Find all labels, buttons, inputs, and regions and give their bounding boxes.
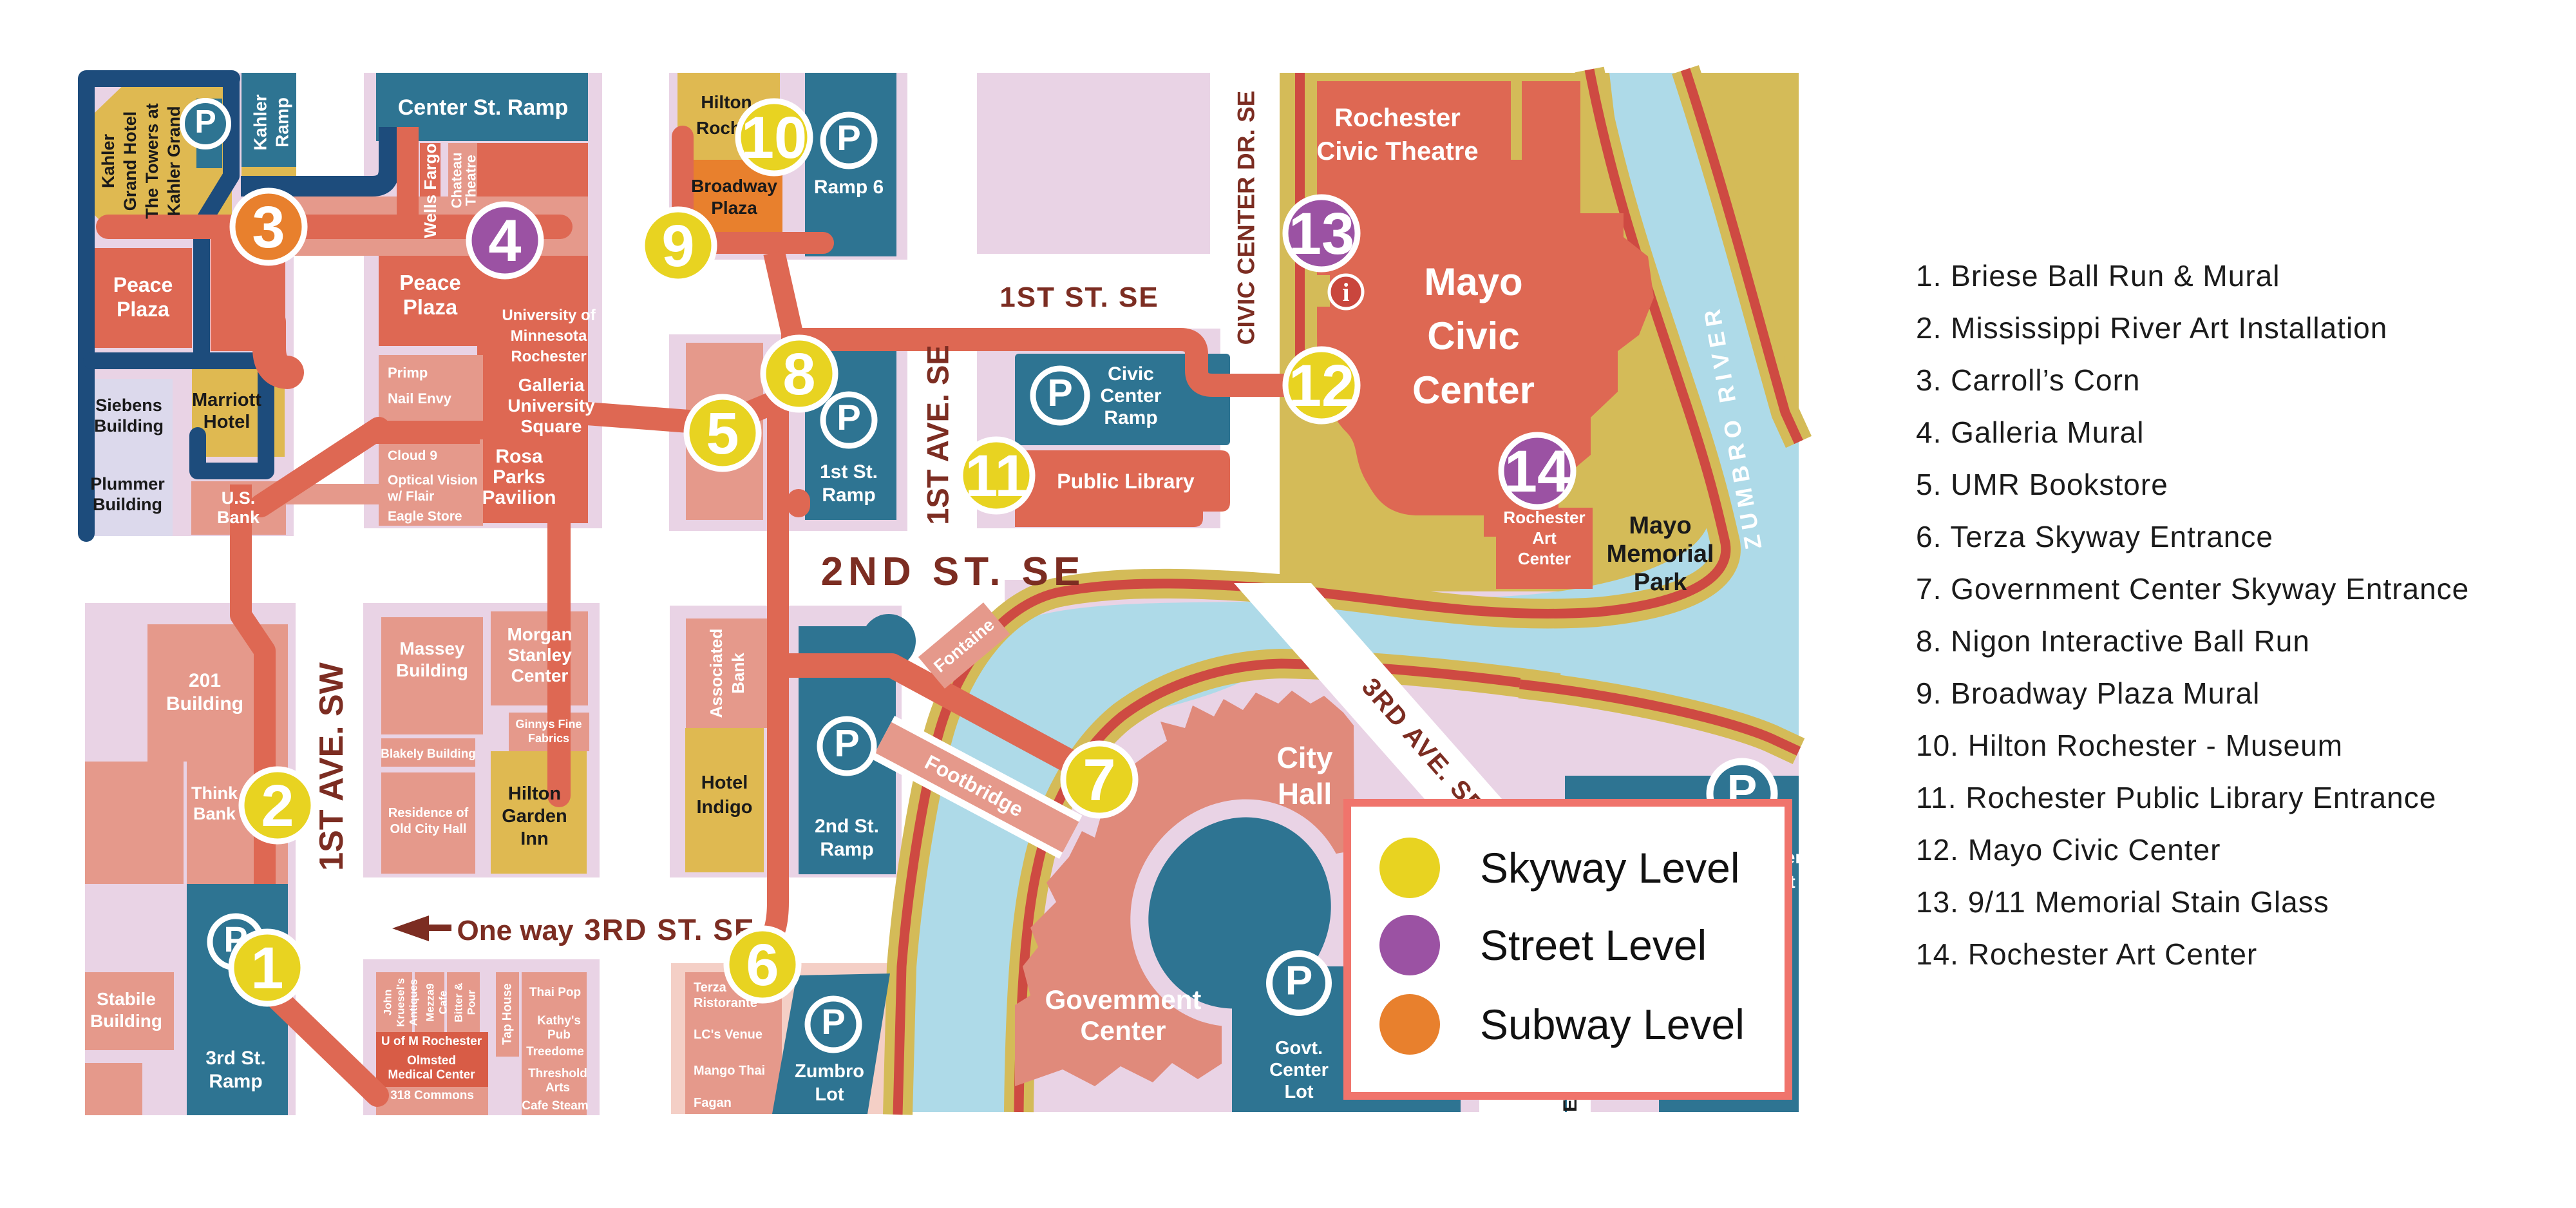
svg-text:w/ Flair: w/ Flair: [387, 489, 434, 504]
svg-text:4: 4: [488, 208, 521, 274]
svg-text:Ramp: Ramp: [1104, 407, 1157, 428]
svg-text:Cloud 9: Cloud 9: [388, 448, 437, 463]
svg-text:Street Level: Street Level: [1480, 921, 1707, 969]
svg-text:CIVIC CENTER DR. SE: CIVIC CENTER DR. SE: [1233, 91, 1260, 345]
svg-text:Broadway: Broadway: [691, 176, 777, 196]
svg-text:Mayo: Mayo: [1424, 260, 1522, 303]
svg-text:Parks: Parks: [493, 466, 545, 488]
svg-text:1ST ST. SE: 1ST ST. SE: [999, 282, 1159, 313]
svg-text:9. Broadway Plaza Mural: 9. Broadway Plaza Mural: [1916, 676, 2260, 710]
svg-text:Public Library: Public Library: [1057, 470, 1195, 493]
svg-text:Stanley: Stanley: [507, 645, 572, 665]
svg-text:Center St. Ramp: Center St. Ramp: [398, 95, 569, 120]
svg-text:3RD ST. SE: 3RD ST. SE: [584, 913, 755, 946]
svg-text:Zumbro: Zumbro: [795, 1061, 864, 1082]
svg-text:3. Carroll’s Corn: 3. Carroll’s Corn: [1916, 363, 2140, 397]
svg-text:Olmsted: Olmsted: [407, 1054, 456, 1068]
svg-text:Center: Center: [1100, 385, 1161, 407]
svg-text:Pour: Pour: [466, 990, 478, 1015]
svg-text:Minnesota: Minnesota: [511, 327, 587, 345]
svg-text:Civic: Civic: [1108, 363, 1154, 385]
svg-text:11: 11: [965, 443, 1027, 509]
svg-text:Square: Square: [521, 416, 582, 436]
svg-text:Terza: Terza: [694, 981, 727, 995]
svg-text:12. Mayo Civic Center: 12. Mayo Civic Center: [1916, 833, 2221, 867]
svg-text:P: P: [1285, 957, 1313, 1003]
svg-text:LC's Venue: LC's Venue: [694, 1028, 762, 1042]
svg-text:Stabile: Stabile: [97, 989, 156, 1009]
svg-text:11. Rochester Public Library E: 11. Rochester Public Library Entrance: [1916, 781, 2436, 814]
svg-text:Tap House: Tap House: [501, 983, 515, 1045]
svg-text:Bitter &: Bitter &: [453, 983, 465, 1022]
svg-text:14. Rochester Art Center: 14. Rochester Art Center: [1916, 937, 2257, 971]
svg-text:1. Briese Ball Run & Mural: 1. Briese Ball Run & Mural: [1916, 259, 2280, 292]
svg-text:Rochester: Rochester: [511, 348, 586, 365]
svg-text:Eagle Store: Eagle Store: [388, 509, 462, 524]
svg-text:Pub: Pub: [547, 1028, 571, 1042]
svg-text:Peace: Peace: [399, 271, 460, 294]
svg-text:2: 2: [261, 773, 294, 839]
svg-text:Theatre: Theatre: [463, 155, 479, 206]
svg-text:Hall: Hall: [1278, 777, 1332, 810]
svg-text:Marriott: Marriott: [192, 390, 261, 410]
svg-text:Bank: Bank: [728, 653, 748, 694]
svg-text:2. Mississippi River Art Insta: 2. Mississippi River Art Installation: [1916, 311, 2387, 345]
svg-text:Lot: Lot: [815, 1084, 844, 1105]
svg-text:P: P: [194, 104, 216, 140]
svg-text:Wells Fargo: Wells Fargo: [421, 144, 440, 238]
svg-text:Residence of: Residence of: [388, 806, 469, 820]
svg-text:Building: Building: [93, 495, 162, 514]
svg-text:University of: University of: [502, 307, 596, 324]
svg-text:Old City Hall: Old City Hall: [390, 822, 467, 836]
svg-text:The Towers at: The Towers at: [142, 103, 162, 219]
svg-text:Roch: Roch: [696, 118, 741, 138]
svg-text:P: P: [837, 117, 860, 158]
svg-text:Rochester: Rochester: [1334, 104, 1461, 132]
svg-text:Optical Vision: Optical Vision: [388, 473, 478, 488]
svg-text:City: City: [1277, 741, 1333, 774]
svg-text:3: 3: [252, 195, 285, 260]
svg-text:Park: Park: [1634, 569, 1687, 596]
svg-text:5. UMR Bookstore: 5. UMR Bookstore: [1916, 468, 2168, 501]
svg-text:Center: Center: [1269, 1060, 1329, 1080]
svg-text:U.S.: U.S.: [222, 488, 256, 508]
svg-text:14: 14: [1504, 439, 1570, 504]
svg-text:Fagan: Fagan: [694, 1096, 732, 1110]
svg-text:P: P: [834, 722, 859, 765]
svg-text:Plummer: Plummer: [90, 474, 165, 494]
svg-text:Grand Hotel: Grand Hotel: [120, 111, 140, 211]
svg-text:i: i: [1342, 278, 1349, 307]
svg-text:13. 9/11 Memorial Stain Glass: 13. 9/11 Memorial Stain Glass: [1916, 885, 2329, 919]
svg-text:P: P: [821, 1001, 845, 1042]
svg-text:4. Galleria Mural: 4. Galleria Mural: [1916, 416, 2144, 449]
svg-text:Building: Building: [396, 660, 468, 680]
svg-text:Siebens: Siebens: [95, 396, 162, 415]
svg-text:Think: Think: [191, 783, 238, 803]
svg-text:Rosa: Rosa: [495, 446, 543, 467]
svg-text:Govt.: Govt.: [1275, 1038, 1323, 1059]
svg-text:Center: Center: [511, 666, 569, 685]
svg-text:E: E: [1560, 1099, 1581, 1112]
svg-text:Center: Center: [1412, 369, 1535, 412]
svg-text:3rd St.: 3rd St.: [205, 1048, 265, 1069]
svg-text:Garden: Garden: [502, 806, 567, 827]
svg-text:8. Nigon Interactive Ball Run: 8. Nigon Interactive Ball Run: [1916, 624, 2310, 658]
svg-text:Morgan: Morgan: [507, 624, 572, 644]
svg-text:University: University: [507, 396, 595, 416]
svg-text:Indigo: Indigo: [697, 797, 753, 818]
svg-text:318 Commons: 318 Commons: [390, 1089, 474, 1102]
svg-text:Rochester: Rochester: [1503, 508, 1585, 527]
svg-text:Threshold: Threshold: [528, 1067, 587, 1080]
svg-text:Plaza: Plaza: [117, 298, 169, 321]
svg-text:Ramp: Ramp: [820, 839, 873, 860]
svg-text:Galleria: Galleria: [518, 375, 585, 395]
svg-text:Building: Building: [166, 693, 243, 714]
svg-text:Antiques: Antiques: [408, 979, 420, 1026]
svg-text:1ST AVE. SE: 1ST AVE. SE: [921, 345, 955, 524]
svg-text:201: 201: [189, 670, 221, 691]
svg-text:One way: One way: [457, 915, 574, 946]
svg-text:Inn: Inn: [520, 829, 549, 849]
svg-text:6: 6: [746, 932, 779, 998]
svg-text:Nail Envy: Nail Envy: [388, 390, 452, 407]
svg-text:Center: Center: [1080, 1015, 1166, 1046]
svg-text:Pavilion: Pavilion: [482, 487, 556, 508]
svg-text:Ginnys Fine: Ginnys Fine: [515, 718, 582, 731]
svg-text:P: P: [1047, 372, 1072, 414]
svg-text:Cafe Steam: Cafe Steam: [522, 1099, 589, 1113]
svg-text:Kathy's: Kathy's: [537, 1014, 581, 1028]
svg-text:Ramp: Ramp: [209, 1071, 262, 1092]
svg-text:Mezza9: Mezza9: [424, 983, 437, 1022]
svg-text:7. Government Center Skyway En: 7. Government Center Skyway Entrance: [1916, 572, 2469, 606]
svg-text:Plaza: Plaza: [403, 295, 458, 319]
svg-text:Skyway Level: Skyway Level: [1480, 844, 1740, 892]
svg-text:1: 1: [251, 935, 283, 1001]
svg-text:2ND ST. SE: 2ND ST. SE: [821, 550, 1086, 594]
svg-text:Treedome: Treedome: [526, 1045, 584, 1059]
svg-text:5: 5: [706, 401, 739, 466]
svg-text:Mayo: Mayo: [1629, 512, 1691, 539]
svg-text:Arts: Arts: [545, 1081, 570, 1095]
svg-text:Ramp 6: Ramp 6: [814, 177, 884, 198]
svg-text:8: 8: [782, 341, 815, 407]
svg-text:Plaza: Plaza: [711, 198, 757, 218]
svg-text:Cafe: Cafe: [437, 991, 450, 1015]
svg-text:Art: Art: [1532, 528, 1557, 548]
svg-text:12: 12: [1289, 353, 1354, 419]
svg-text:Thai Pop: Thai Pop: [529, 986, 581, 999]
svg-text:U of M Rochester: U of M Rochester: [381, 1035, 482, 1048]
svg-text:Medical Center: Medical Center: [388, 1068, 475, 1082]
svg-text:Peace: Peace: [113, 273, 173, 296]
svg-text:Hotel: Hotel: [204, 412, 251, 432]
svg-text:Building: Building: [90, 1011, 162, 1031]
svg-text:Hilton: Hilton: [508, 783, 561, 804]
svg-text:9: 9: [661, 213, 694, 279]
svg-text:7: 7: [1083, 747, 1115, 813]
svg-text:Associated: Associated: [706, 629, 726, 718]
svg-text:Blakely Building: Blakely Building: [381, 747, 476, 761]
svg-text:John: John: [382, 990, 394, 1016]
svg-text:1st St.: 1st St.: [820, 461, 878, 483]
svg-text:Civic Theatre: Civic Theatre: [1316, 137, 1478, 166]
svg-text:Massey: Massey: [399, 638, 465, 658]
svg-text:Center: Center: [1518, 549, 1571, 568]
svg-text:P: P: [837, 397, 860, 437]
svg-text:Mango Thai: Mango Thai: [694, 1064, 765, 1078]
svg-text:Civic: Civic: [1427, 314, 1519, 358]
svg-text:Subway Level: Subway Level: [1480, 1001, 1745, 1048]
svg-text:Kahler: Kahler: [99, 133, 118, 188]
svg-text:Memorial: Memorial: [1607, 541, 1714, 568]
svg-text:Fabrics: Fabrics: [528, 732, 569, 745]
svg-text:Bank: Bank: [193, 804, 236, 823]
svg-text:10: 10: [741, 105, 807, 171]
svg-text:Kruesel's: Kruesel's: [395, 978, 407, 1027]
svg-text:10. Hilton Rochester - Museum: 10. Hilton Rochester - Museum: [1916, 729, 2343, 762]
svg-text:Lot: Lot: [1284, 1082, 1313, 1102]
svg-text:1ST AVE. SW: 1ST AVE. SW: [313, 662, 350, 871]
svg-text:Bank: Bank: [217, 508, 260, 527]
svg-text:Primp: Primp: [388, 365, 428, 381]
svg-text:13: 13: [1289, 201, 1354, 267]
svg-text:Hotel: Hotel: [701, 772, 748, 793]
svg-text:Kahler: Kahler: [251, 94, 270, 150]
svg-text:Building: Building: [94, 416, 164, 436]
svg-text:6. Terza Skyway Entrance: 6. Terza Skyway Entrance: [1916, 520, 2273, 553]
svg-text:Ramp: Ramp: [272, 97, 292, 148]
svg-text:Govemment: Govemment: [1045, 984, 1202, 1015]
svg-text:Ramp: Ramp: [822, 484, 875, 506]
svg-text:2nd St.: 2nd St.: [815, 816, 879, 837]
